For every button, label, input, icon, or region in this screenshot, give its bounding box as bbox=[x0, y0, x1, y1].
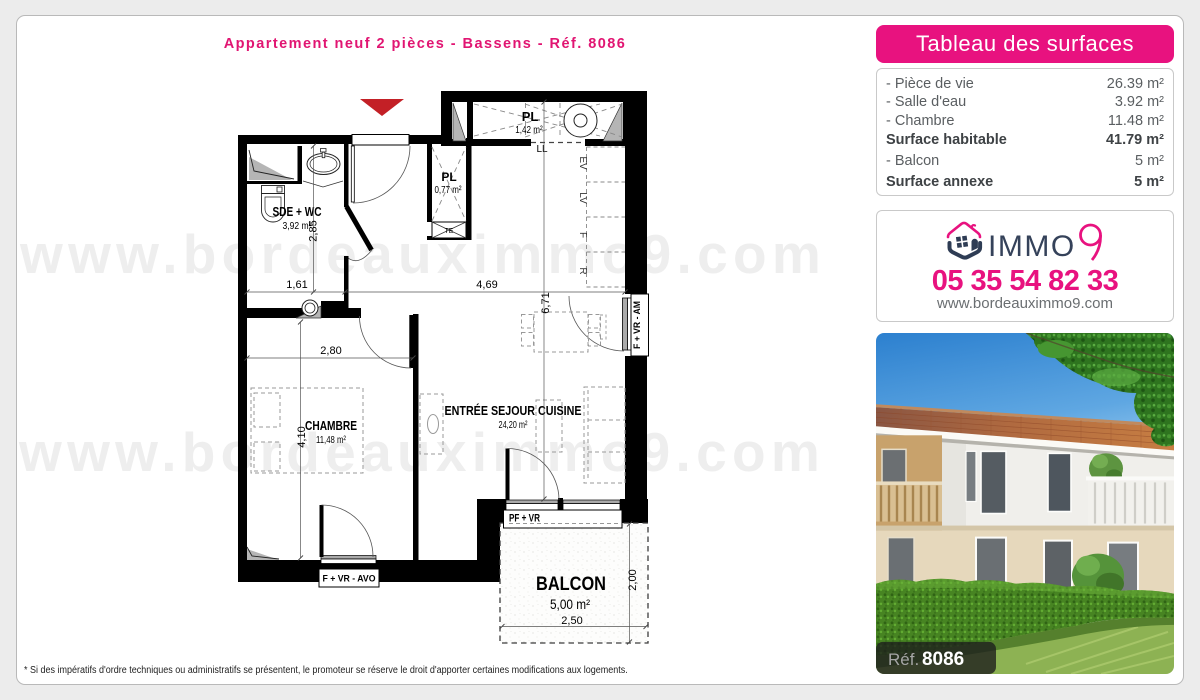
svg-text:2,85: 2,85 bbox=[308, 220, 320, 241]
svg-text:11,48 m²: 11,48 m² bbox=[316, 434, 346, 446]
svg-text:Réf.: Réf. bbox=[888, 650, 919, 669]
svg-text:R: R bbox=[577, 267, 588, 274]
svg-text:ENTRÉE SEJOUR CUISINE: ENTRÉE SEJOUR CUISINE bbox=[445, 403, 582, 418]
svg-text:F + VR - AM: F + VR - AM bbox=[632, 301, 643, 349]
svg-text:F: F bbox=[577, 232, 588, 238]
svg-text:LV: LV bbox=[577, 192, 588, 204]
svg-text:24,20 m²: 24,20 m² bbox=[499, 419, 528, 431]
svg-text:4,69: 4,69 bbox=[476, 279, 497, 291]
svg-text:6,71: 6,71 bbox=[540, 292, 552, 313]
svg-text:SDE + WC: SDE + WC bbox=[273, 204, 322, 219]
svg-text:TE: TE bbox=[445, 228, 454, 235]
svg-text:PF + VR: PF + VR bbox=[509, 513, 540, 525]
svg-text:IMMO: IMMO bbox=[988, 230, 1076, 263]
svg-text:LL: LL bbox=[536, 144, 548, 155]
svg-text:1,42 m²: 1,42 m² bbox=[515, 125, 543, 136]
svg-text:BALCON: BALCON bbox=[536, 574, 606, 595]
svg-text:2,00: 2,00 bbox=[627, 569, 639, 590]
svg-text:2,50: 2,50 bbox=[561, 615, 582, 627]
svg-text:EV: EV bbox=[577, 156, 588, 170]
svg-text:0,77 m²: 0,77 m² bbox=[435, 185, 463, 196]
svg-text:2,80: 2,80 bbox=[320, 345, 341, 357]
svg-text:PL: PL bbox=[441, 170, 456, 184]
svg-text:F + VR - AVO: F + VR - AVO bbox=[323, 574, 376, 585]
svg-text:CHAMBRE: CHAMBRE bbox=[305, 418, 357, 433]
svg-text:5,00 m²: 5,00 m² bbox=[550, 596, 590, 612]
svg-text:8086: 8086 bbox=[922, 649, 964, 670]
svg-text:1,61: 1,61 bbox=[286, 279, 307, 291]
svg-text:PL: PL bbox=[522, 109, 539, 124]
svg-text:4,10: 4,10 bbox=[296, 426, 308, 447]
